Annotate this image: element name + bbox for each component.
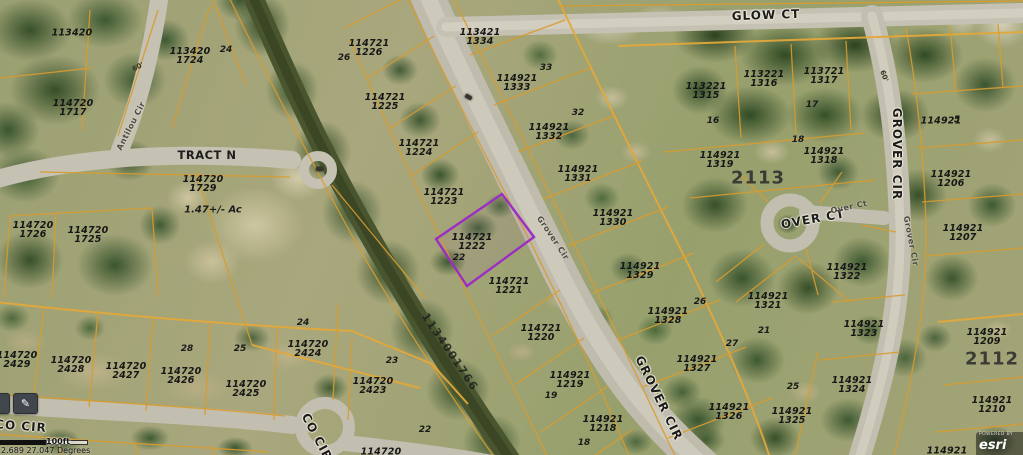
parcel-label: 1147201725: [68, 226, 109, 244]
parcel-label: 1149211210: [972, 396, 1013, 414]
parcel-label: 1149211218: [583, 415, 624, 433]
coordinates-readout: 2.689 27.047 Degrees: [1, 446, 90, 455]
parcel-label: 1149211326: [709, 403, 750, 421]
parcel-label: 1149211322: [827, 263, 868, 281]
parcel-label: 1147202426: [161, 367, 202, 385]
dimension-label: 60': [131, 61, 145, 74]
parcel-label: 1149211328: [648, 307, 689, 325]
lot-number: 25: [787, 382, 800, 392]
selected-parcel-label: 1147211222: [452, 233, 493, 251]
parcel-label: 1149211209: [967, 328, 1008, 346]
parcel-label: 1149211332: [529, 123, 570, 141]
parcel-label: 1134201724: [170, 47, 211, 65]
lot-number: 22: [419, 425, 432, 435]
lot-number: 27: [726, 339, 739, 349]
street-label: Over Ct: [830, 199, 868, 216]
street-label: Antilou Cir: [115, 100, 147, 152]
parcel-label: 1147211225: [365, 93, 406, 111]
parcel-label: 114921: [927, 447, 968, 455]
lot-number: 26: [338, 53, 351, 63]
scale-label: 100ft: [46, 437, 70, 446]
toolbar-button-draw[interactable]: ✎: [13, 393, 38, 414]
lot-number: 32: [572, 108, 585, 118]
parcel-label: 1149211207: [943, 224, 984, 242]
lot-number: 23: [386, 356, 399, 366]
lot-number: 21: [758, 326, 771, 336]
parcel-label: 1132211316: [744, 70, 785, 88]
parcel-label: 1149211219: [550, 371, 591, 389]
parcel-label: 1149211323: [844, 320, 885, 338]
area-label: 1.47+/- Ac: [184, 205, 242, 216]
lot-number: 5: [954, 115, 960, 125]
parcel-map[interactable]: 1134201134201724114720171711472017261147…: [0, 0, 1023, 455]
parcel-label: 1147201717: [53, 99, 94, 117]
parcel-label: 1149211333: [497, 74, 538, 92]
street-label: GROVER CIR: [632, 353, 685, 442]
esri-attribution: POWERED BY esri: [976, 432, 1023, 455]
street-label: Grover Cir: [535, 214, 571, 261]
parcel-label: 1147202427: [106, 362, 147, 380]
parcel-label: 1149211331: [558, 165, 599, 183]
street-label: GLOW CT: [731, 7, 800, 23]
parcel-label: 1132211315: [686, 82, 727, 100]
parcel-label: 1149211206: [931, 170, 972, 188]
labels-layer: 1134201134201724114720171711472017261147…: [0, 0, 1023, 455]
street-label: OVER CT: [780, 206, 846, 231]
parcel-label: 1147201729: [183, 175, 224, 193]
area-label: TRACT N: [177, 148, 236, 162]
powered-by-text: POWERED BY: [979, 433, 1020, 438]
parcel-label: 1147211223: [424, 188, 465, 206]
lot-number: 24: [297, 318, 310, 328]
parcel-label: 113420: [52, 29, 93, 38]
lot-number: 33: [540, 63, 553, 73]
parcel-label: 1149211324: [832, 376, 873, 394]
parcel-label: 1149211325: [772, 407, 813, 425]
parcel-label: 1149211319: [700, 151, 741, 169]
lot-number: 24: [220, 45, 233, 55]
parcel-label: 1147202425: [226, 380, 267, 398]
lot-number: 17: [806, 100, 819, 110]
parcel-label: 1149211327: [677, 355, 718, 373]
area-label: 2112: [965, 349, 1019, 370]
parcel-label: 1147211224: [399, 139, 440, 157]
parcel-label: 1147211226: [349, 39, 390, 57]
parcel-label: 1147202428: [51, 356, 92, 374]
esri-logo: esri: [979, 439, 1020, 452]
dimension-label: 60': [878, 69, 890, 83]
lot-number: 25: [234, 344, 247, 354]
parcel-label: 1149211321: [748, 292, 789, 310]
parcel-label: 1149211329: [620, 262, 661, 280]
lot-number: 18: [792, 135, 805, 145]
parcel-label: 1149211318: [804, 147, 845, 165]
area-label: 2113: [731, 168, 785, 189]
parcel-label: 1149211330: [593, 209, 634, 227]
lot-number: 28: [181, 344, 194, 354]
street-label: CO CIR: [299, 411, 336, 455]
street-label: GROVER CIR: [890, 108, 904, 200]
street-label: Grover Cir: [902, 215, 921, 267]
parcel-label: 1147202424: [288, 340, 329, 358]
toolbar-button-partial[interactable]: [0, 393, 10, 414]
parcel-label: 1147202423: [353, 377, 394, 395]
parcel-label: 1137211317: [804, 67, 845, 85]
street-label: CO CIR: [0, 417, 47, 435]
parcel-label: 1147202429: [0, 351, 37, 369]
parcel-label: 1147211221: [489, 277, 530, 295]
draw-icon: ✎: [21, 397, 30, 410]
parcel-label: 114921: [921, 117, 962, 126]
parcel-label: 1134211334: [460, 28, 501, 46]
selected-parcel-lot-number: 22: [453, 253, 466, 263]
scale-bar-segment: [0, 440, 46, 445]
parcel-label: 1147201726: [13, 221, 54, 239]
lot-number: 19: [545, 391, 558, 401]
lot-number: 26: [694, 297, 707, 307]
parcel-label: 1147211220: [521, 324, 562, 342]
lot-number: 16: [707, 116, 720, 126]
lot-number: 18: [578, 438, 591, 448]
watermark-label: 1134001766: [419, 310, 481, 393]
parcel-label: 114720: [361, 448, 402, 455]
